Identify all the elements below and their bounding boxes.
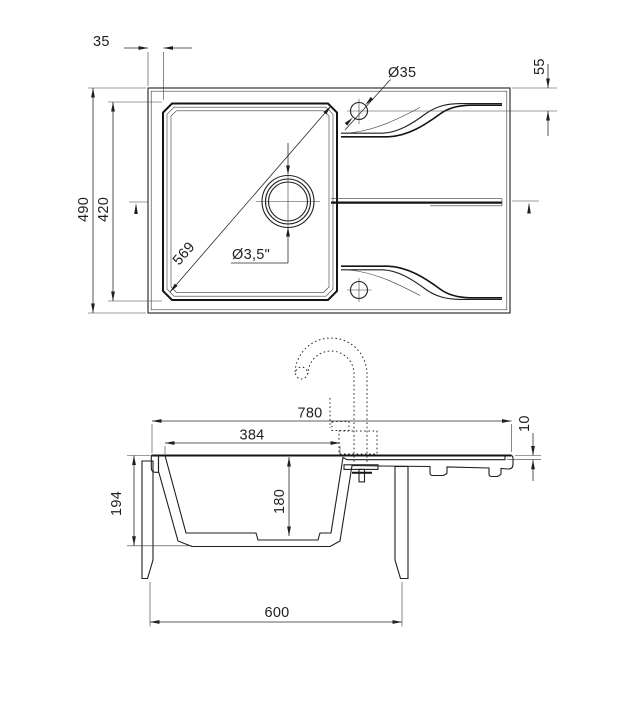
faucet-mount — [344, 465, 378, 482]
dim-tap-hole-dia: Ø35 — [345, 65, 417, 130]
section-view: 780 384 10 194 — [109, 338, 541, 627]
drawing-canvas: 35 490 420 55 — [0, 0, 633, 721]
dim-sink-height: 194 — [109, 456, 192, 546]
dim-drain-dia: Ø3,5" — [231, 143, 290, 263]
dim-label-180: 180 — [272, 489, 288, 514]
dim-label-35: 35 — [93, 34, 110, 50]
dim-label-600: 600 — [264, 605, 289, 621]
dim-label-55: 55 — [532, 58, 548, 75]
dim-bowl-width: 384 — [165, 428, 340, 456]
dim-cabinet-width: 600 — [150, 582, 402, 627]
dim-bowl-depth: 420 — [96, 102, 162, 301]
dim-label-drain: Ø3,5" — [232, 247, 270, 263]
drainer-ribs — [331, 104, 502, 300]
faucet-phantom — [295, 338, 377, 466]
dim-label-194: 194 — [109, 491, 125, 516]
dim-label-780: 780 — [297, 406, 322, 422]
dim-overall-width: 780 — [152, 406, 512, 454]
dim-label-10: 10 — [517, 415, 533, 432]
top-view: 35 490 420 55 — [76, 34, 557, 313]
drain-flange — [256, 172, 320, 231]
dim-bowl-height: 180 — [272, 457, 291, 536]
sink-body-section — [151, 456, 513, 547]
dim-label-384: 384 — [239, 428, 264, 444]
dim-rim-offset: 35 — [93, 34, 192, 100]
sink-technical-drawing: 35 490 420 55 — [0, 0, 633, 721]
dim-label-o35: Ø35 — [388, 65, 416, 81]
dim-label-490: 490 — [76, 197, 92, 222]
dim-label-420: 420 — [96, 197, 112, 222]
dim-drainer-recess: 10 — [507, 415, 541, 481]
